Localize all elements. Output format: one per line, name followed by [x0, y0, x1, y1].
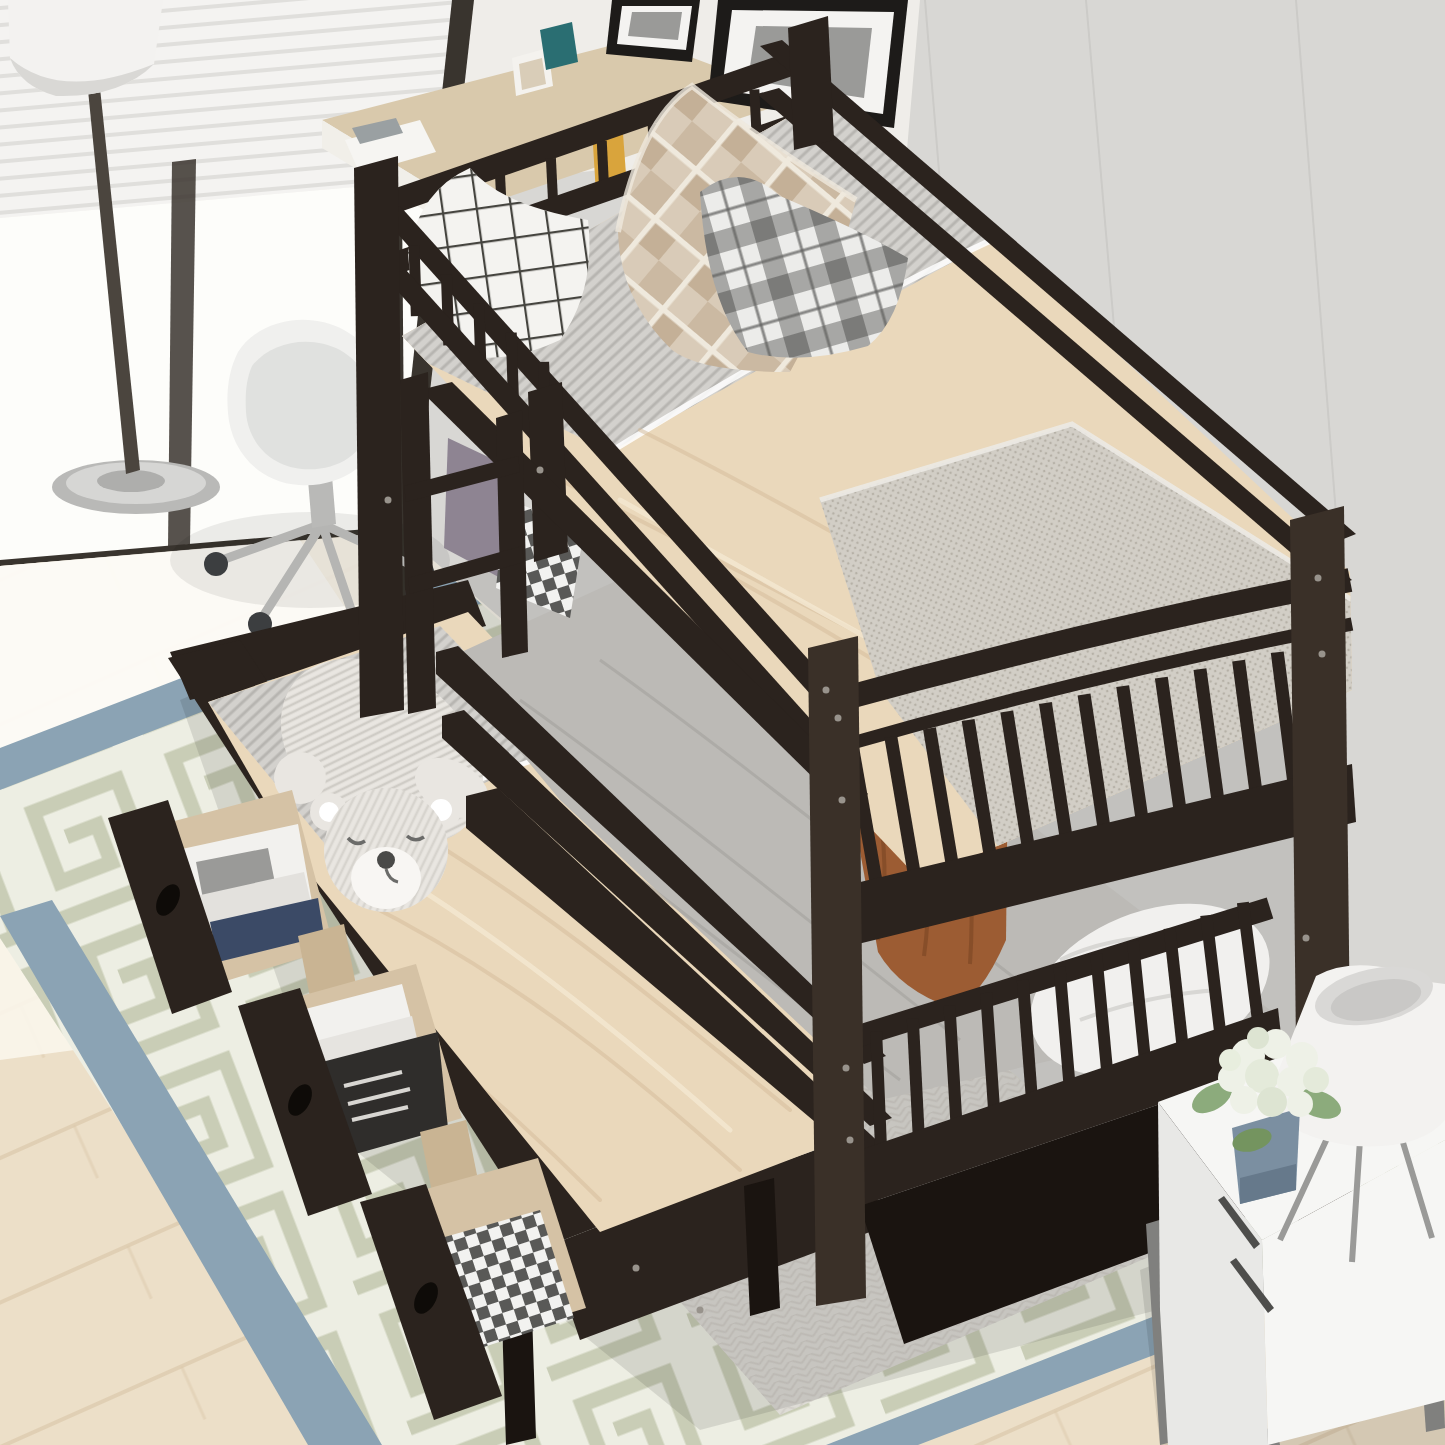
bedroom-scene: Overhead view of an espresso wood twin-o… — [0, 0, 1445, 1445]
screw-dot — [847, 1137, 854, 1144]
trundle-leg — [744, 1178, 780, 1316]
lamp-base-hub — [97, 470, 165, 492]
screw-dot — [843, 1065, 850, 1072]
screw-dot — [1319, 651, 1326, 658]
chair-seat — [246, 342, 373, 470]
screw-dot — [1303, 935, 1310, 942]
desk-teal-card — [540, 22, 578, 70]
screw-dot — [697, 1307, 704, 1314]
bed-spindle — [913, 1025, 918, 1131]
bed-spindle — [950, 1012, 956, 1118]
bed-spindle — [1023, 986, 1031, 1092]
screw-dot — [835, 715, 842, 722]
bed-spindle — [876, 1038, 880, 1144]
bunk-bed-photo: Overhead view of an espresso wood twin-o… — [0, 0, 1445, 1445]
foot-post-near — [808, 636, 866, 1306]
screw-dot — [823, 687, 830, 694]
screw-dot — [385, 497, 392, 504]
frame-art — [628, 12, 682, 40]
bed-spindle — [987, 999, 994, 1105]
bear-nose — [377, 851, 395, 869]
screw-dot — [1315, 575, 1322, 582]
screw-dot — [633, 1265, 640, 1272]
chair-caster — [204, 552, 228, 576]
head-post-far — [788, 16, 834, 150]
screw-dot — [537, 467, 544, 474]
screw-dot — [839, 797, 846, 804]
head-post-near — [354, 156, 404, 718]
